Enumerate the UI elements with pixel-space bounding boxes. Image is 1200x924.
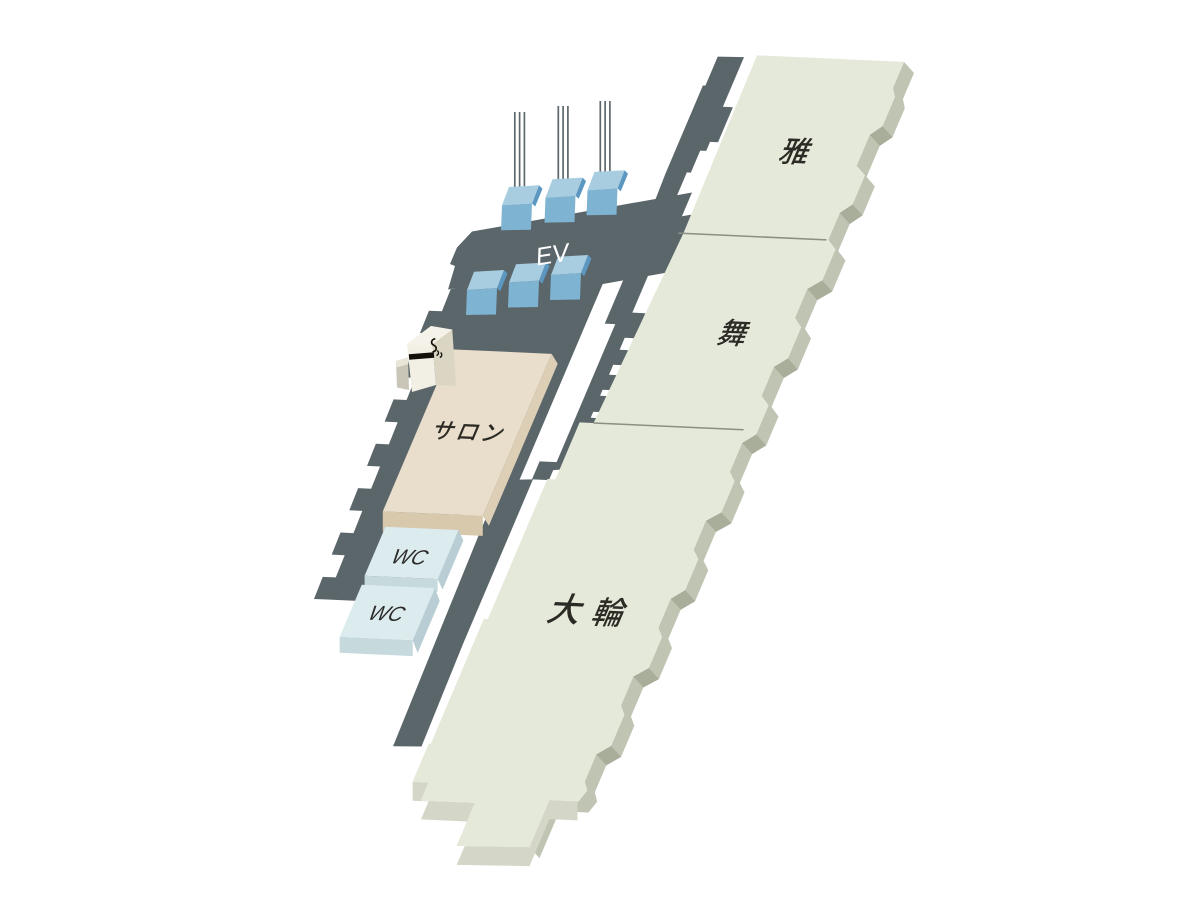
svg-text:EV: EV bbox=[534, 238, 574, 271]
